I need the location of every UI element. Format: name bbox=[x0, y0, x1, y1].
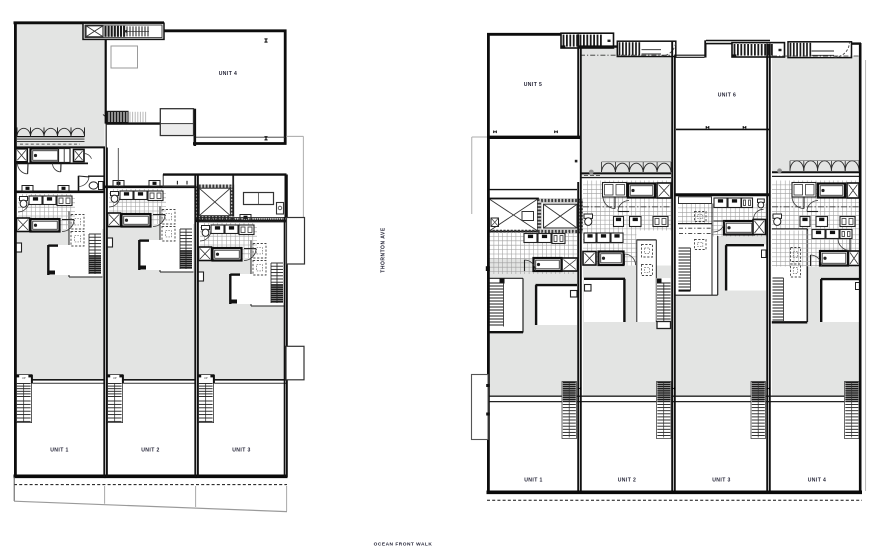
svg-text:UP: UP bbox=[113, 376, 117, 380]
svg-text:UNIT 3: UNIT 3 bbox=[712, 478, 731, 484]
svg-text:OCEAN FRONT WALK: OCEAN FRONT WALK bbox=[374, 542, 433, 548]
svg-text:UNIT 6: UNIT 6 bbox=[718, 93, 737, 99]
svg-text:UNIT 4: UNIT 4 bbox=[808, 478, 827, 484]
svg-text:UP: UP bbox=[22, 376, 26, 380]
svg-text:UNIT 2: UNIT 2 bbox=[618, 478, 637, 484]
svg-text:UNIT 1: UNIT 1 bbox=[524, 478, 543, 484]
svg-text:UNIT 5: UNIT 5 bbox=[524, 82, 543, 88]
svg-text:UP: UP bbox=[204, 376, 208, 380]
svg-text:UNIT 1: UNIT 1 bbox=[50, 448, 69, 454]
svg-text:UNIT 3: UNIT 3 bbox=[232, 448, 251, 454]
svg-text:UNIT 2: UNIT 2 bbox=[141, 448, 160, 454]
svg-text:UNIT 4: UNIT 4 bbox=[219, 71, 238, 77]
svg-text:THORNTON AVE: THORNTON AVE bbox=[381, 227, 387, 273]
